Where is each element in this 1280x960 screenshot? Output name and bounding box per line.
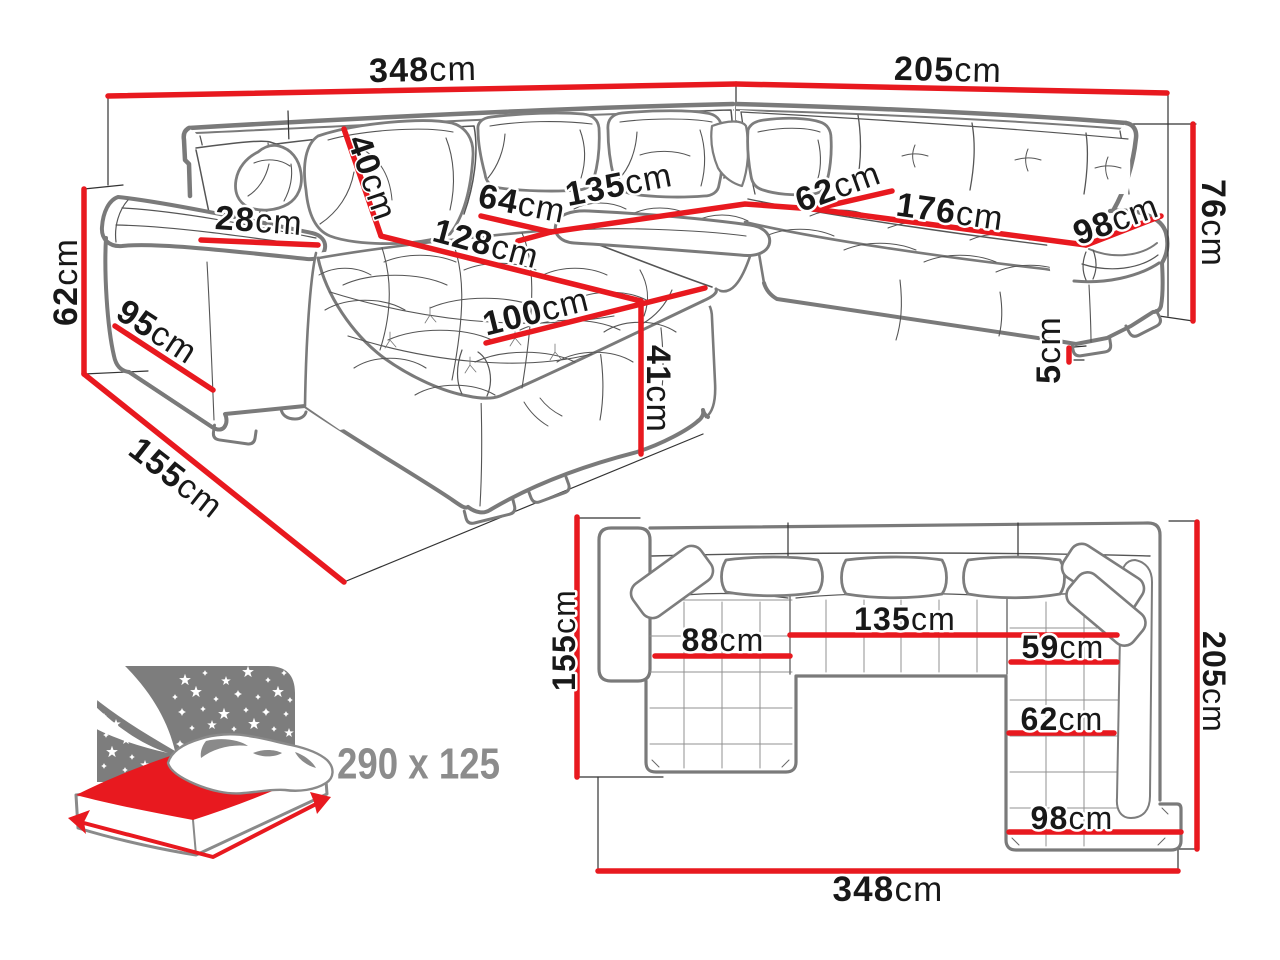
svg-text:290 x 125: 290 x 125 [337, 740, 500, 789]
svg-text:98cm: 98cm [1030, 800, 1113, 836]
svg-text:95cm: 95cm [110, 292, 204, 372]
svg-text:76cm: 76cm [1194, 179, 1232, 267]
svg-text:62cm: 62cm [1020, 701, 1103, 737]
svg-text:62cm: 62cm [47, 238, 85, 326]
svg-text:41cm: 41cm [639, 345, 677, 433]
svg-text:155cm: 155cm [546, 589, 582, 691]
svg-text:135cm: 135cm [854, 601, 956, 637]
svg-text:205cm: 205cm [1196, 631, 1232, 733]
svg-text:5cm: 5cm [1030, 316, 1068, 384]
svg-text:205cm: 205cm [894, 50, 1003, 90]
svg-text:28cm: 28cm [214, 199, 304, 243]
svg-text:59cm: 59cm [1021, 629, 1104, 665]
svg-text:348cm: 348cm [832, 870, 943, 909]
svg-text:348cm: 348cm [369, 50, 478, 90]
svg-text:88cm: 88cm [681, 622, 764, 658]
